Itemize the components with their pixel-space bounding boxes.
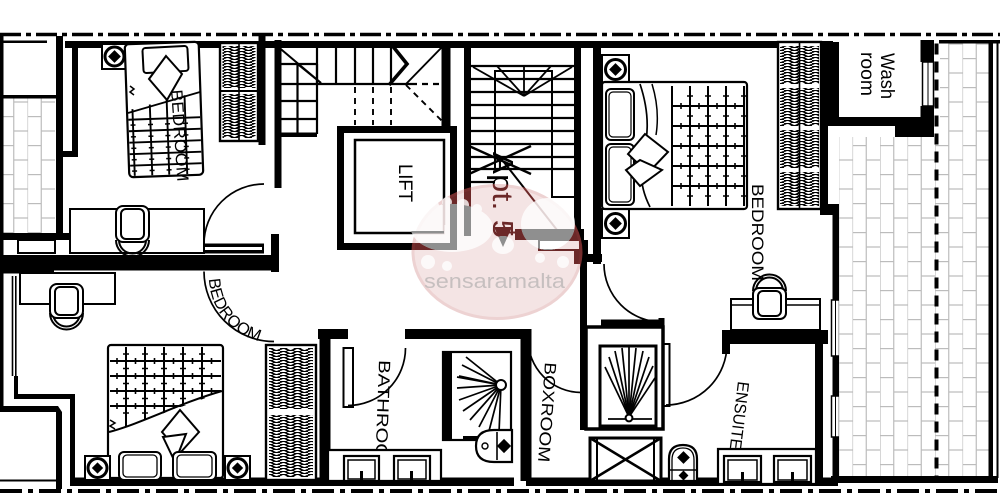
svg-text:BEDROOM: BEDROOM [748, 184, 767, 281]
svg-text:sensaramalta: sensaramalta [424, 271, 566, 293]
svg-text:Wash: Wash [876, 53, 897, 99]
svg-text:room: room [856, 52, 877, 96]
svg-text:LIFT: LIFT [394, 164, 415, 202]
